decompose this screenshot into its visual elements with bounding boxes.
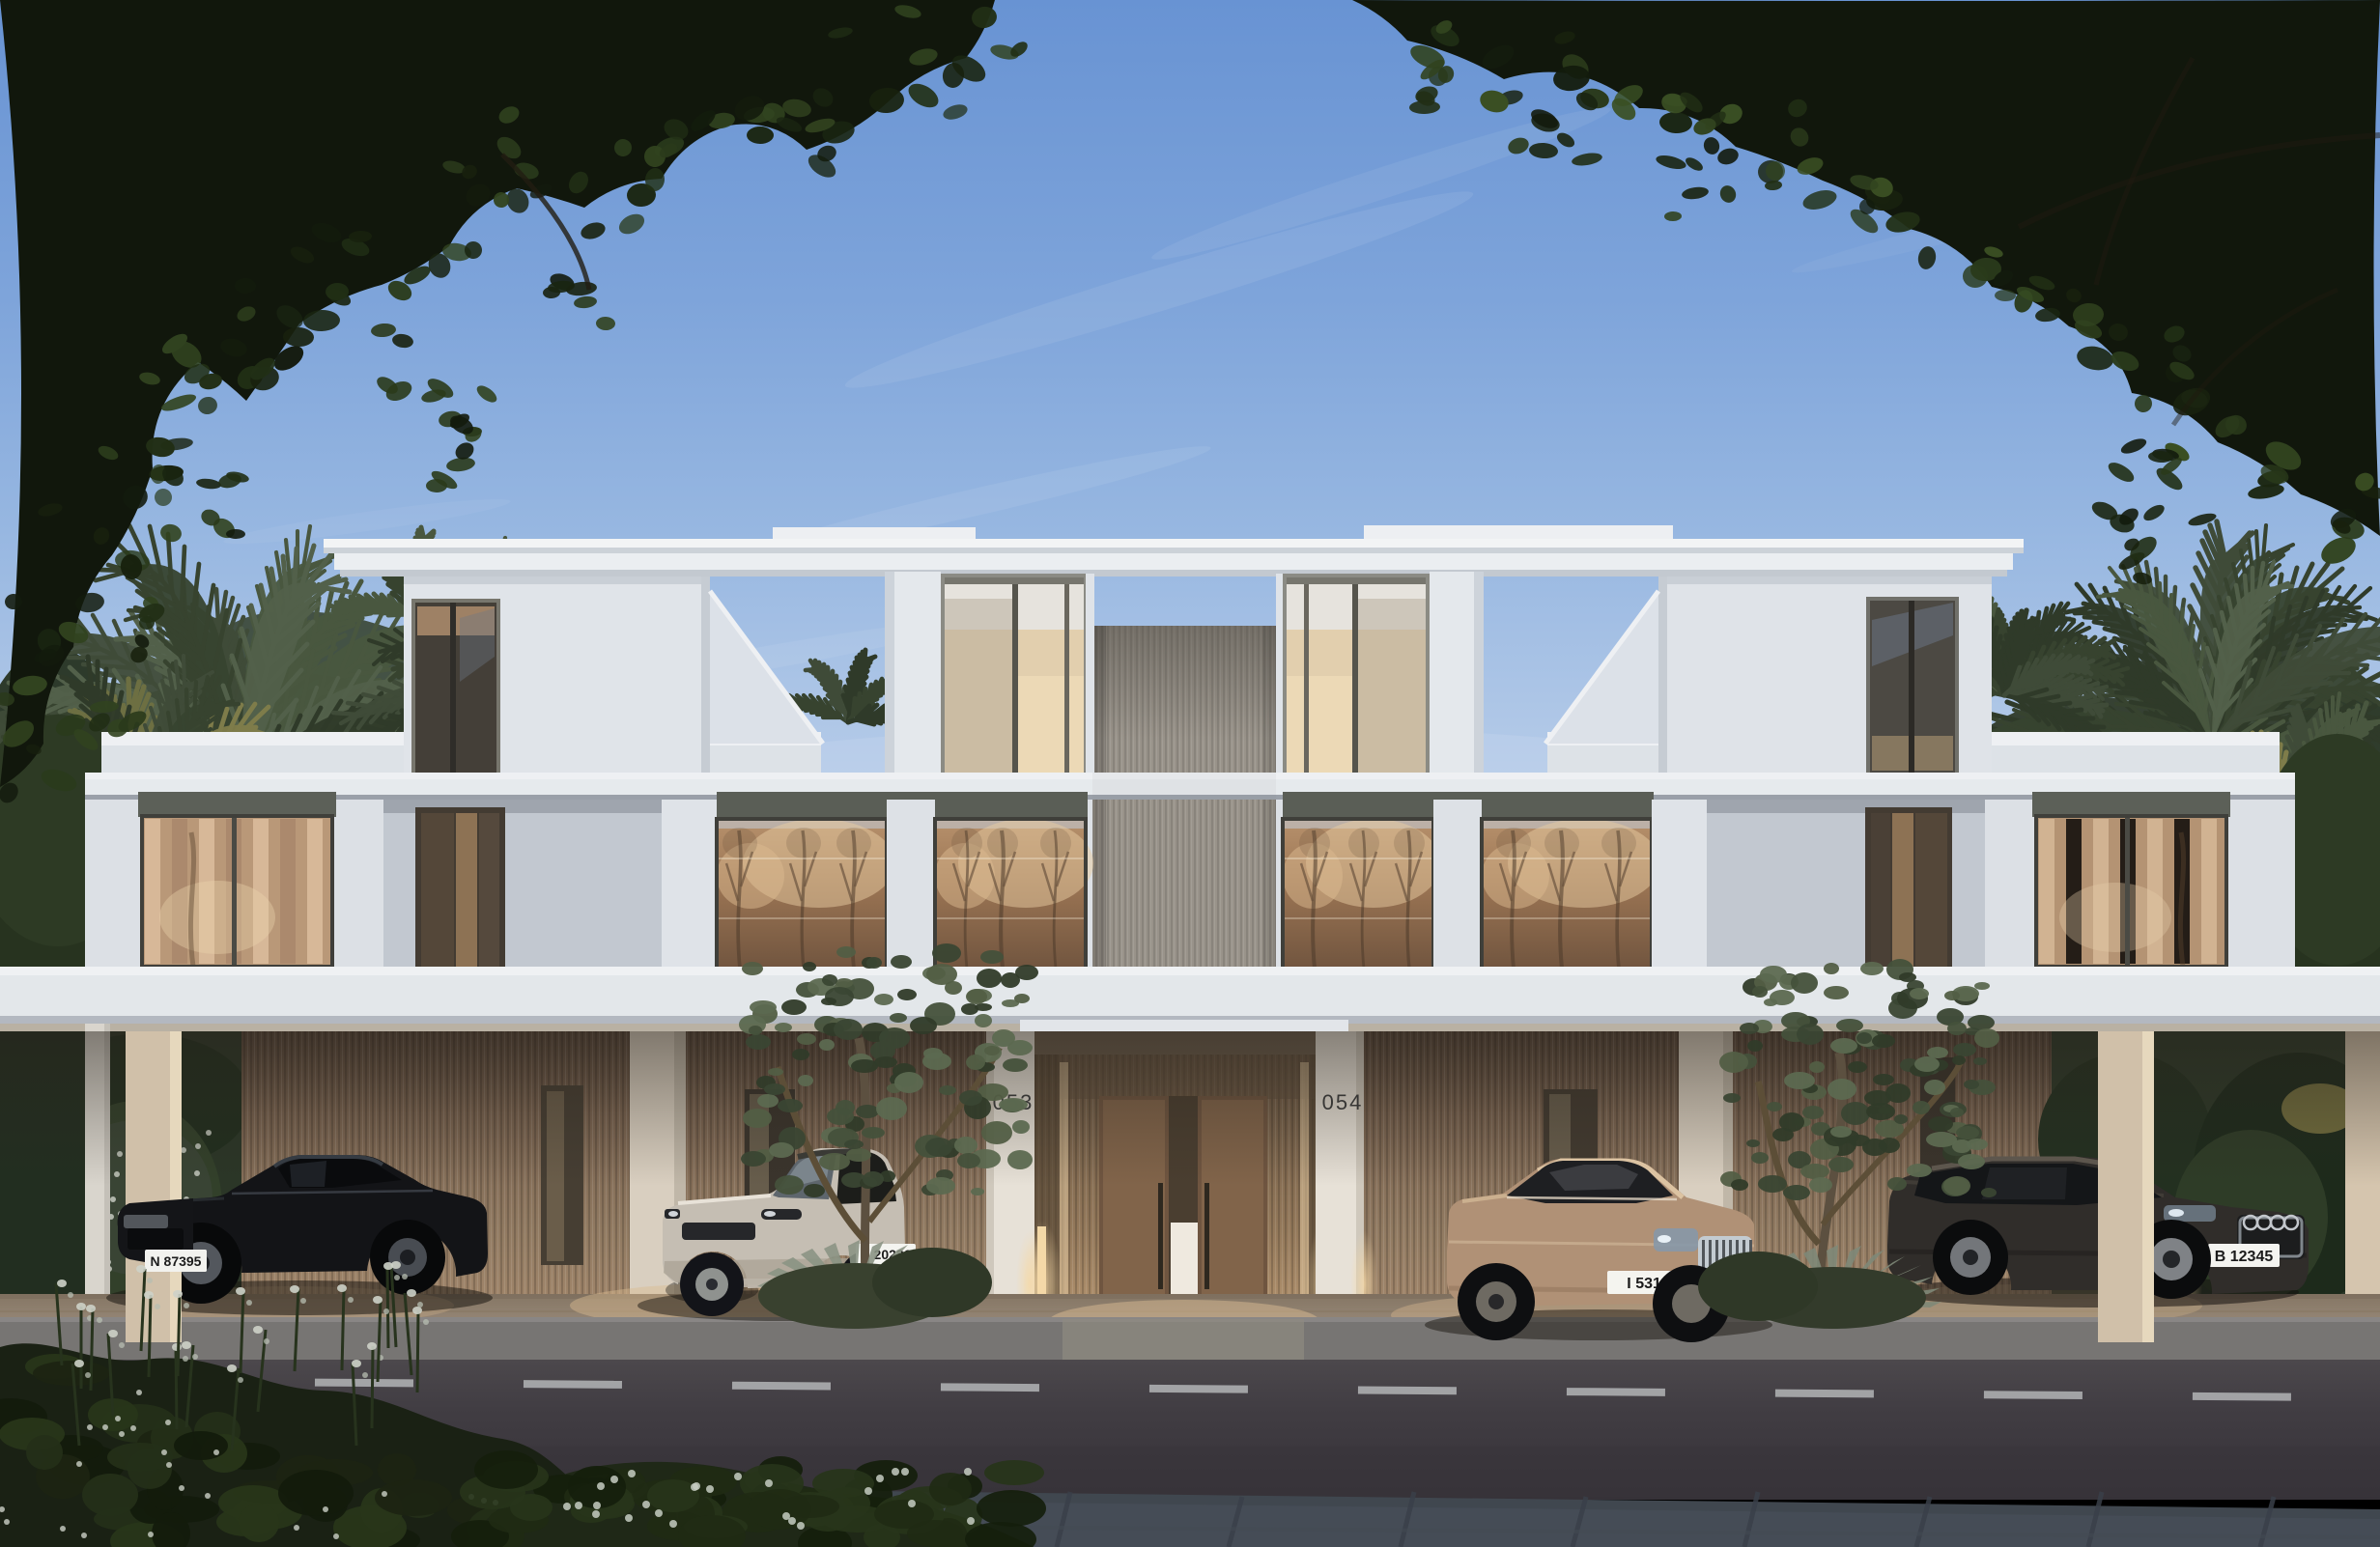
svg-text:B 12345: B 12345 [2215,1249,2274,1265]
svg-text:N 87395: N 87395 [151,1253,202,1269]
